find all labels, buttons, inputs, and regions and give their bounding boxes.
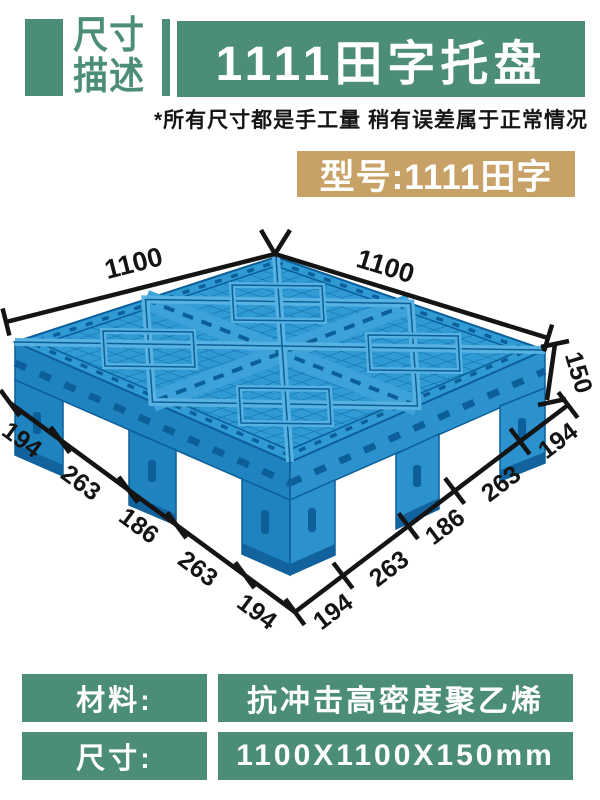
dim-top-left-1100: 1100	[101, 241, 165, 284]
spec-value-size: 1100X1100X150mm	[218, 732, 573, 780]
spec-value-material: 抗冲击高密度聚乙烯	[218, 674, 573, 722]
spec-label-material: 材料:	[22, 674, 207, 722]
dim-height-150: 150	[559, 349, 598, 397]
spec-label-size: 尺寸:	[22, 732, 207, 780]
product-infographic-page: 尺寸 描述 1111田字托盘 *所有尺寸都是手工量 稍有误差属于正常情况 型号:…	[0, 0, 600, 800]
pallet-top-deck	[15, 257, 545, 462]
